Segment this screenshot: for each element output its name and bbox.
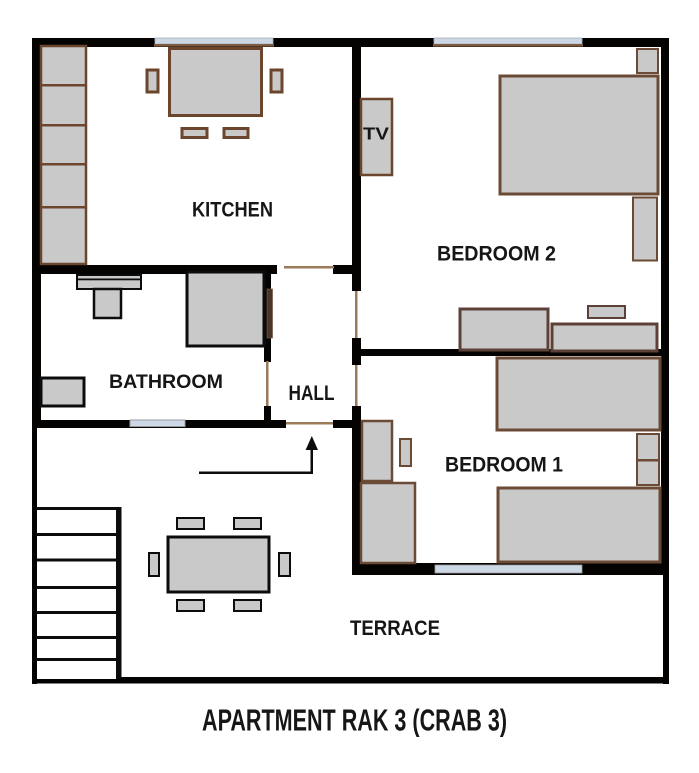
- svg-text:BEDROOM 1: BEDROOM 1: [445, 453, 563, 477]
- svg-text:TERRACE: TERRACE: [350, 616, 440, 640]
- svg-text:KITCHEN: KITCHEN: [192, 198, 273, 222]
- svg-text:HALL: HALL: [289, 382, 335, 405]
- svg-text:BATHROOM: BATHROOM: [109, 371, 223, 393]
- svg-text:TV: TV: [363, 124, 389, 144]
- svg-text:BEDROOM 2: BEDROOM 2: [437, 242, 556, 266]
- svg-text:APARTMENT RAK 3 (CRAB 3): APARTMENT RAK 3 (CRAB 3): [202, 703, 507, 738]
